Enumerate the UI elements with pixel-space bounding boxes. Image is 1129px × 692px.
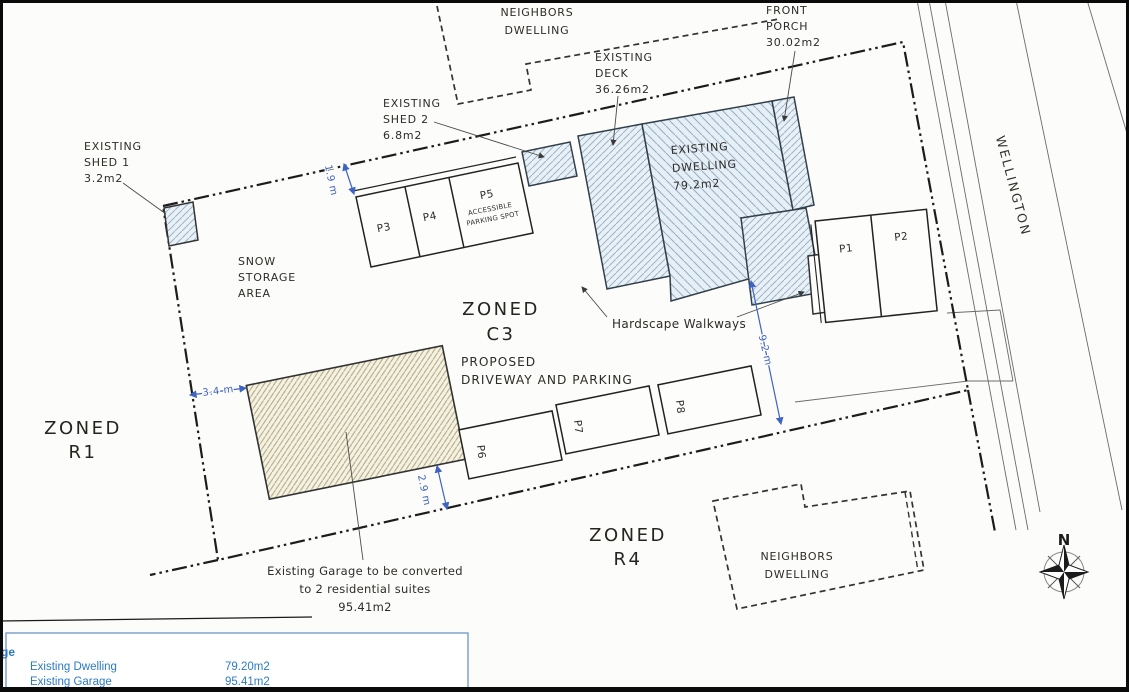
label-line: 3.2m2 — [84, 172, 123, 185]
legend-item-name: Existing Dwelling — [30, 661, 117, 673]
hardscape-walkways-label: Hardscape Walkways — [612, 317, 746, 331]
label-line: EXISTING — [383, 97, 441, 110]
parking-block-p1-p2 — [811, 209, 938, 323]
compass-north-label: N — [1058, 531, 1071, 549]
label-line: SHED 1 — [84, 156, 130, 169]
parking-p2-label: P2 — [894, 230, 909, 243]
label-line: PROPOSED — [461, 355, 536, 369]
parking-p6-label: P6 — [474, 444, 488, 459]
legend-item-area: 79.20m2 — [225, 661, 270, 673]
label-line: SHED 2 — [383, 113, 429, 126]
label-line: STORAGE — [238, 271, 296, 284]
label-line: 6.8m2 — [383, 129, 422, 142]
parking-p8-label: P8 — [673, 399, 687, 414]
label-line: 95.41m2 — [338, 600, 392, 614]
legend-item-name: Existing Garage — [30, 676, 112, 688]
label-line: ZONED — [589, 525, 667, 546]
label-line: PORCH — [766, 20, 808, 33]
legend-header-fragment: ge — [1, 645, 15, 659]
label-line: ZONED — [462, 299, 540, 320]
label-line: NEIGHBORS — [500, 6, 573, 19]
parking-p7-label: P7 — [571, 419, 585, 434]
label-line: R1 — [69, 442, 98, 463]
label-line: NEIGHBORS — [760, 550, 833, 563]
label-line: 36.26m2 — [595, 83, 650, 96]
label-line: Existing Garage to be converted — [267, 564, 463, 578]
label-line: DRIVEWAY AND PARKING — [461, 373, 633, 387]
label-line: SNOW — [238, 255, 276, 268]
label-line: to 2 residential suites — [299, 582, 430, 596]
existing-shed1-shape — [164, 202, 198, 246]
label-line: DWELLING — [505, 24, 570, 37]
site-plan-sheet: WELLINGTON NEIGHBORS DWELLING NEIGHBORS … — [0, 0, 1129, 692]
label-line: C3 — [486, 324, 515, 345]
label-line: ZONED — [44, 418, 122, 439]
label-line: FRONT — [766, 4, 808, 17]
label-line: EXISTING — [595, 51, 653, 64]
label-line: AREA — [238, 287, 271, 300]
label-line: EXISTING — [84, 140, 142, 153]
label-line: R4 — [614, 549, 643, 570]
label-line: DECK — [595, 67, 629, 80]
label-line: DWELLING — [765, 568, 830, 581]
label-line: 30.02m2 — [766, 36, 821, 49]
site-plan-drawing: WELLINGTON NEIGHBORS DWELLING NEIGHBORS … — [0, 0, 1129, 692]
legend-item-area: 95.41m2 — [225, 676, 270, 688]
parking-p1-label: P1 — [839, 242, 854, 255]
